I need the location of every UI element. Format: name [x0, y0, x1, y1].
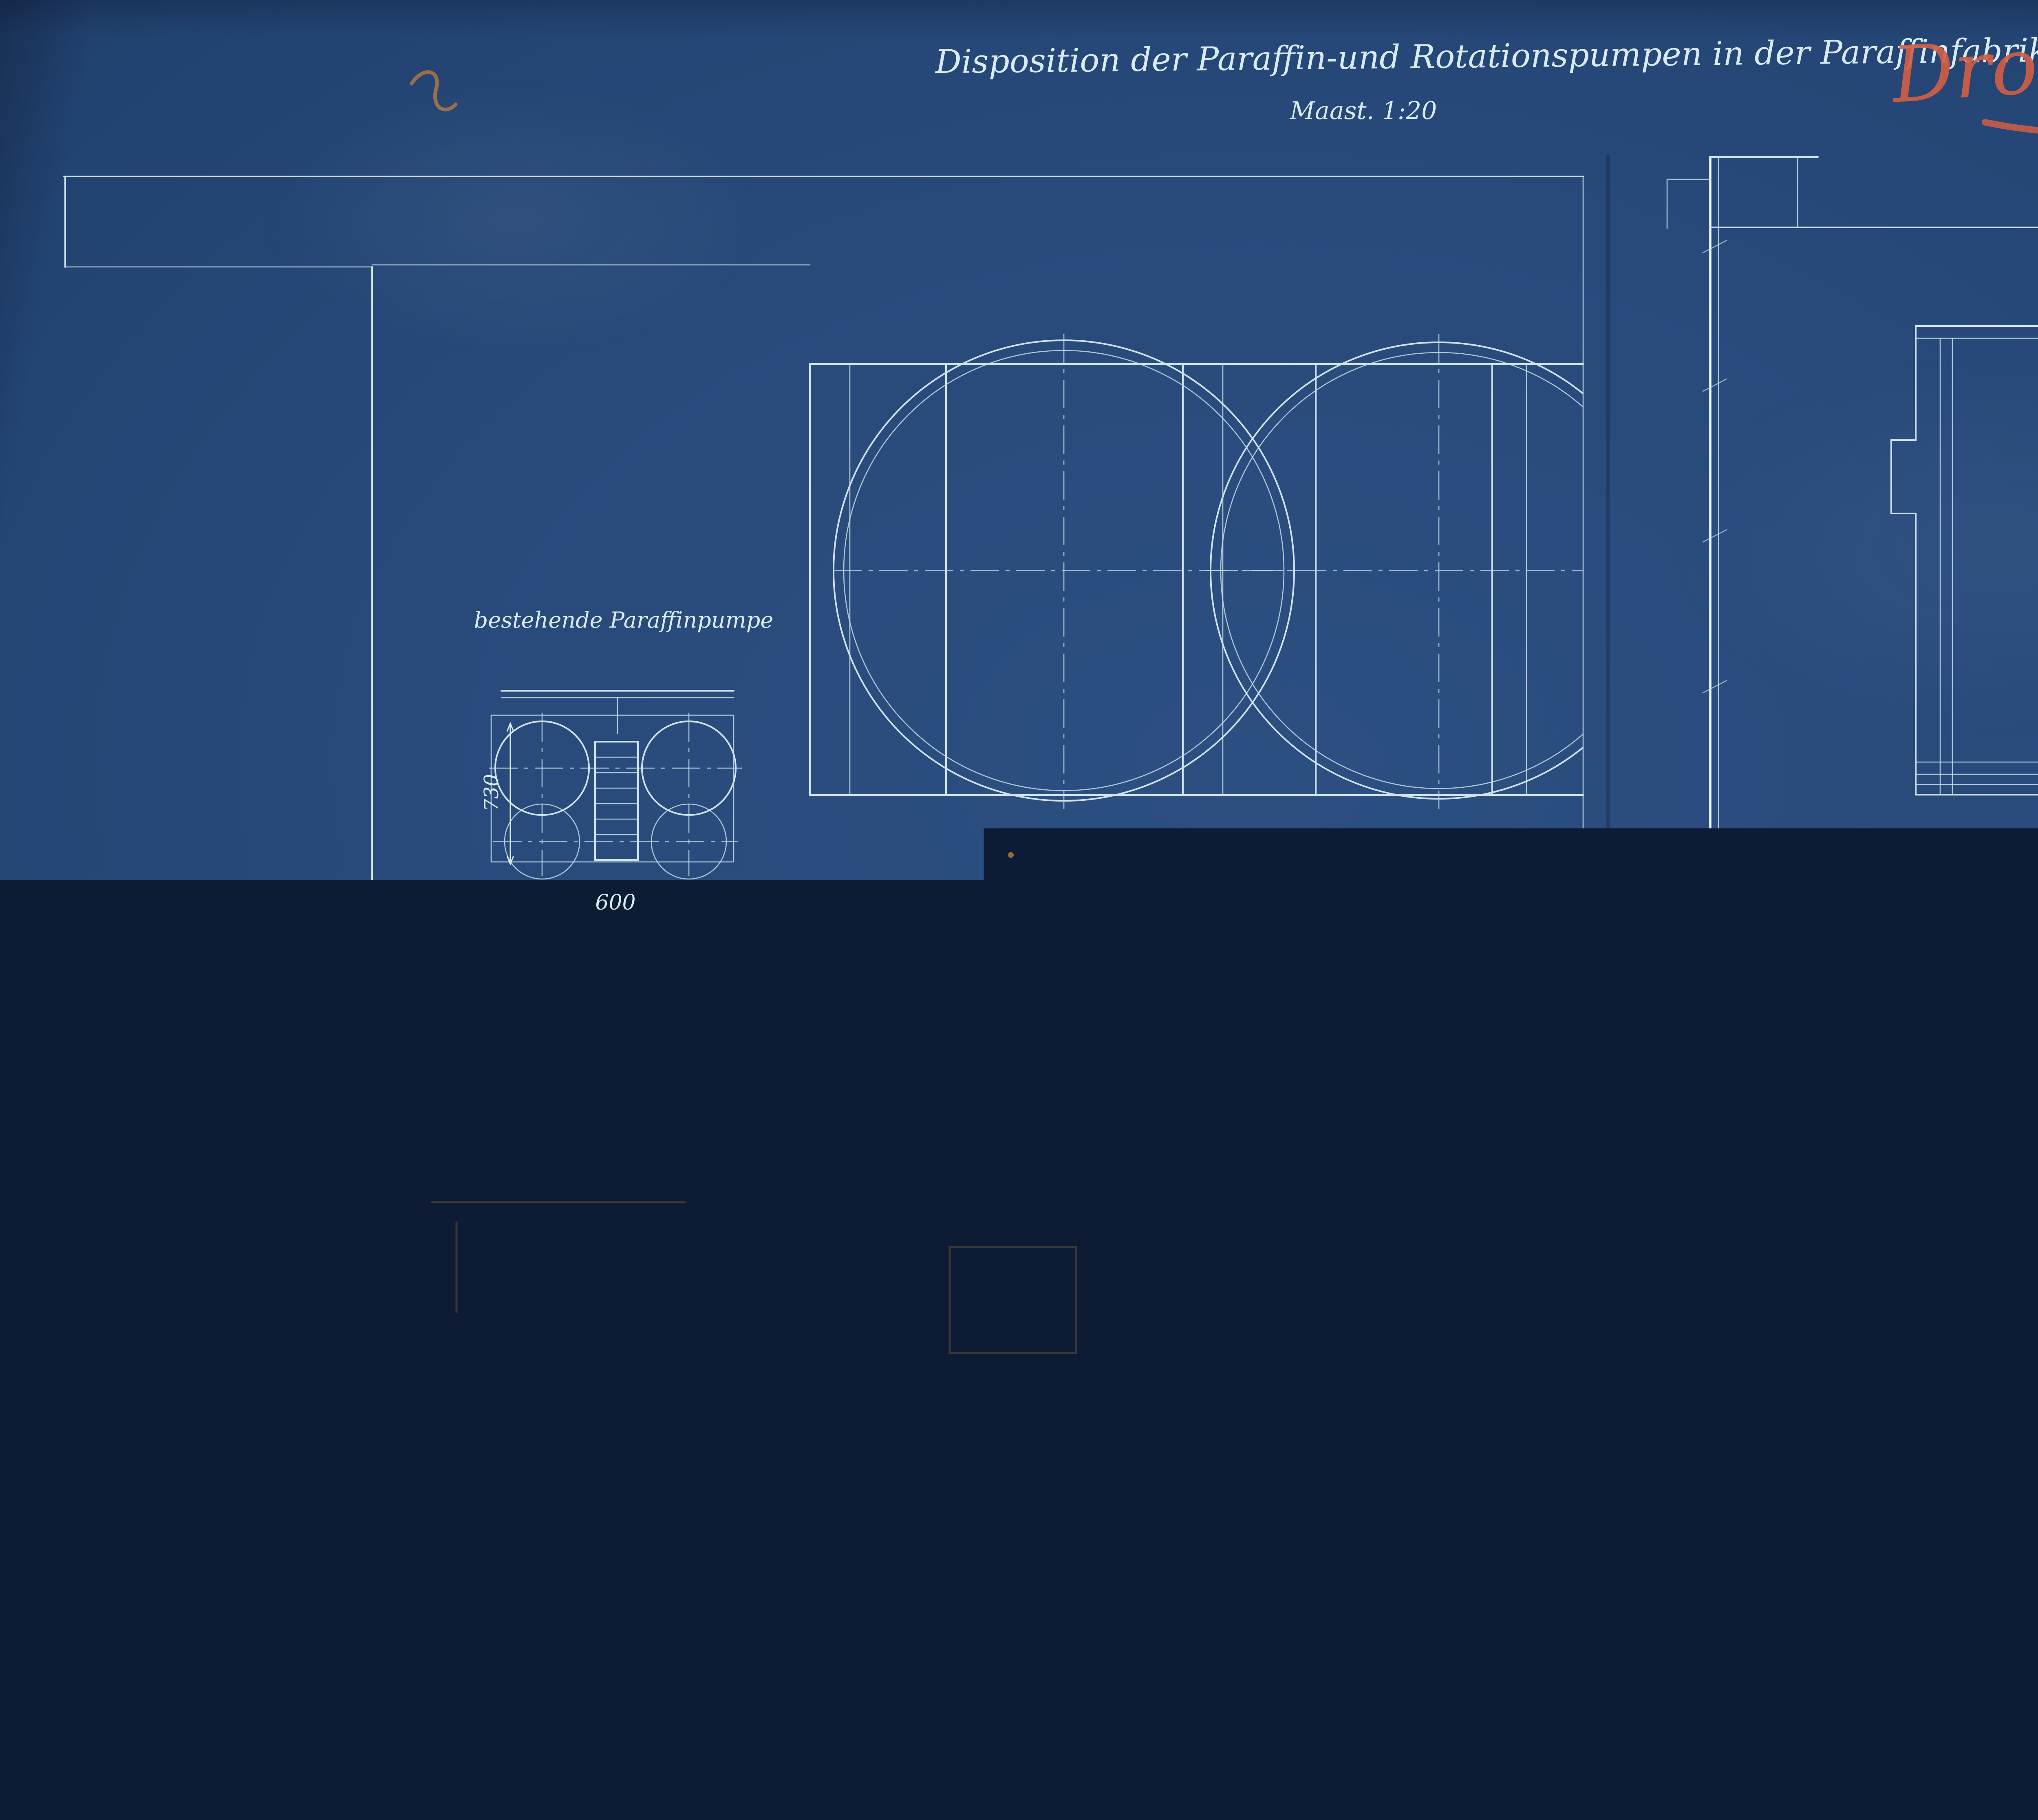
dimension-label: 400: [464, 1294, 500, 1316]
dimension-label: 535: [220, 1432, 239, 1463]
machine-room-section: [1710, 991, 2038, 1655]
blueprint-drawing: Disposition der Paraffin-und Rotationspu…: [0, 0, 2038, 1820]
dimension-label: 510: [151, 1371, 187, 1393]
dimension-label: 450: [574, 1292, 612, 1315]
pump-base: [439, 1174, 525, 1310]
pump-existing-paraffin-drawing: [489, 691, 742, 893]
tank-arc-dashed: [1272, 950, 1728, 1406]
pump-base: [842, 1174, 927, 1310]
pencil-dot: [1008, 852, 1014, 858]
axis-note: Mitte Saug- und Druckrohr: [0, 1102, 21, 1351]
pump-existing-fill-label: bestehende Füllpumpe: [374, 1331, 563, 1350]
dimension-label: 120: [399, 1294, 430, 1313]
dimension-label: 370: [397, 1390, 431, 1411]
dimension-label: 1090: [517, 1551, 567, 1574]
pump-new-paraffin-drawing: [976, 1027, 1219, 1394]
dimension-label: 150: [947, 1292, 978, 1311]
blueprint-sheet: Disposition der Paraffin-und Rotationspu…: [0, 0, 2038, 1820]
dimension-label: 600: [595, 890, 635, 915]
dimension-label: 400: [756, 1293, 791, 1314]
dimension-label: 490: [334, 1467, 368, 1488]
pencil-mark: [412, 72, 456, 110]
dimension-label: 420: [979, 1220, 999, 1253]
pump-base: [731, 1174, 816, 1310]
dimension-label: 900: [269, 1492, 287, 1523]
paraffin-tanks: [834, 334, 1667, 809]
dimension-label: 200: [1715, 1657, 1751, 1679]
dimension-label: 95: [1148, 1438, 1169, 1458]
pump-new-fill-drawing: [652, 1439, 695, 1632]
dimension-label: 200: [9, 1377, 40, 1396]
dimension-label: 1140: [216, 1593, 266, 1615]
dimension-label: 730: [972, 1258, 993, 1292]
dimension-label: 2000: [689, 1379, 739, 1463]
page-title: Disposition der Paraffin-und Rotationspu…: [934, 31, 2038, 81]
dimension-label: 120: [691, 1293, 721, 1311]
dimension-label: 310: [1061, 1447, 1092, 1465]
dimension-label: 600: [242, 1370, 278, 1392]
red-place-name: Drohobycz: [1888, 1, 2038, 121]
wall-hatching: [1703, 240, 1727, 1487]
text-layer: Disposition der Paraffin-und Rotationspu…: [0, 31, 2038, 1712]
dimension-label: 1450: [1822, 1467, 1879, 1494]
dimension-label: 150: [655, 1293, 686, 1312]
pump-existing-paraffin-label: bestehende Paraffinpumpe: [474, 607, 774, 633]
dimension-label: 120: [1107, 1446, 1137, 1464]
dimension-label: 1380: [1790, 1393, 1847, 1419]
tank-platform: [810, 364, 1583, 795]
scan-artifact-white: [1129, 1809, 1206, 1820]
shaft-highlight: [1911, 1434, 2038, 1449]
scale-note: Maast. 1:20: [1290, 97, 1437, 125]
dimension-label: 420: [378, 1223, 398, 1256]
dimension-label: 2970: [1928, 941, 1993, 971]
left-plan-walls: [64, 176, 1583, 1585]
dimension-label: 525: [1092, 1391, 1124, 1411]
dimension-label: 730: [480, 774, 503, 811]
note-like-existing: wie bei bestehender Pumpe: [38, 1316, 257, 1334]
pump-base: [550, 1174, 636, 1310]
dimension-label: 2950: [825, 1439, 886, 1467]
dimension-label: 400: [811, 1591, 833, 1627]
dimension-label: 530: [71, 1375, 104, 1395]
red-crayon-marks: Drohobycz № 3817/84 736 s: [1888, 1, 2038, 1813]
dimension-label: 600: [1086, 1217, 1125, 1241]
dimension-label: 70: [735, 1496, 760, 1523]
dimension-label: 250: [3, 1400, 22, 1432]
dimension-label: 335: [65, 1593, 103, 1615]
dimension-label: 4350: [752, 1116, 821, 1148]
scan-artifact-dark: [1207, 1810, 1295, 1820]
dimension-label: 450: [867, 1292, 902, 1313]
dimension-label: 250: [4, 1457, 23, 1489]
stair-pit: [919, 1349, 1274, 1585]
pump-new-fill-label: neue Füllpumpe: [614, 1332, 748, 1351]
dimension-label: 250: [454, 1389, 489, 1410]
upper-tank-section: [1891, 326, 2038, 990]
dimension-label: 1670: [128, 1268, 178, 1291]
dimension-label: 400: [581, 1195, 622, 1220]
